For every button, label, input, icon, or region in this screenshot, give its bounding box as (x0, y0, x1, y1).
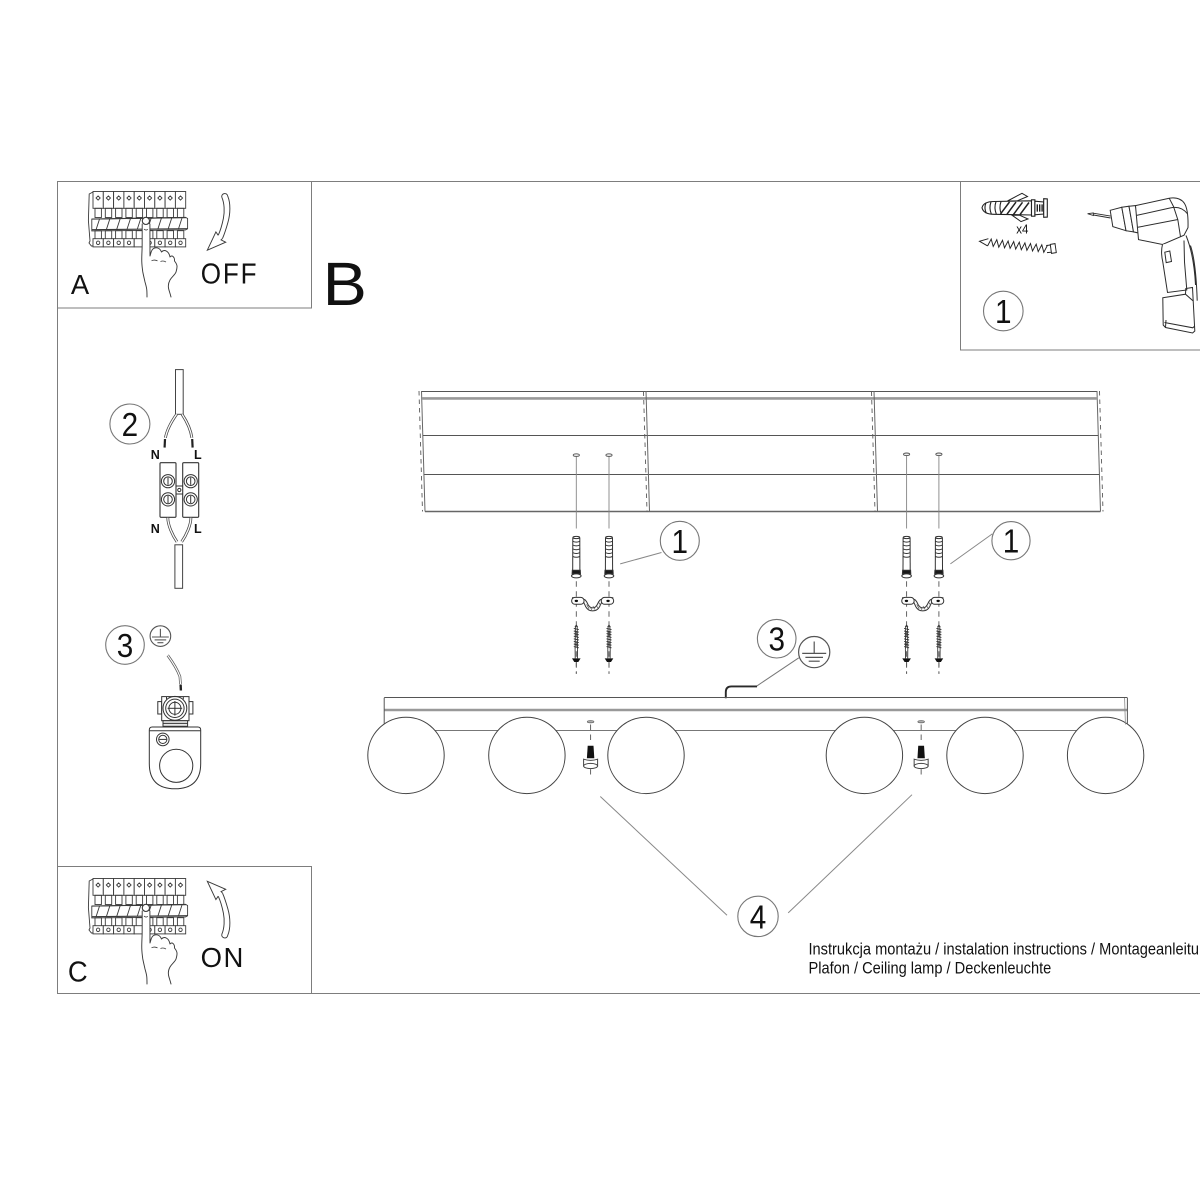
svg-text:N: N (151, 447, 160, 462)
svg-text:N: N (151, 521, 160, 536)
svg-text:ON: ON (201, 942, 245, 973)
svg-text:B: B (323, 249, 367, 318)
svg-text:3: 3 (117, 628, 134, 665)
svg-text:2: 2 (122, 407, 139, 444)
svg-text:Plafon / Ceiling lamp / Decken: Plafon / Ceiling lamp / Deckenleuchte (809, 960, 1052, 978)
svg-text:Instrukcja montażu / instalati: Instrukcja montażu / instalation instruc… (809, 941, 1200, 959)
svg-text:L: L (194, 447, 202, 462)
svg-text:C: C (68, 956, 88, 987)
svg-text:3: 3 (768, 621, 785, 658)
svg-text:L: L (194, 521, 202, 536)
svg-text:A: A (71, 269, 90, 300)
svg-text:4: 4 (750, 899, 767, 936)
svg-text:OFF: OFF (201, 257, 259, 290)
svg-text:1: 1 (1003, 523, 1020, 560)
svg-text:1: 1 (672, 523, 689, 560)
svg-text:x4: x4 (1016, 222, 1028, 237)
svg-text:1: 1 (995, 294, 1012, 331)
